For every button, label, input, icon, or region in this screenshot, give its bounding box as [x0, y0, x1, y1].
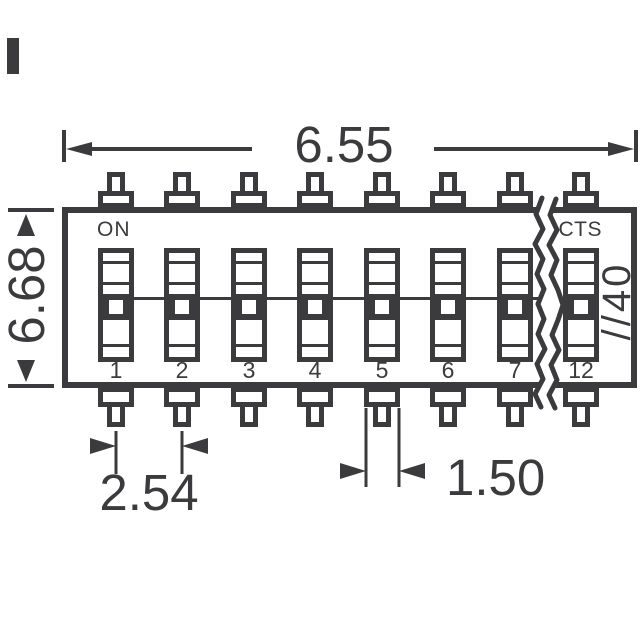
- dip-switch-drawing: 1 2 3 4 5 6 7 12 ON CTS //40 6.55 6.68 2…: [0, 0, 640, 640]
- dimension-lines: [0, 0, 640, 640]
- corner-mark: [7, 38, 19, 74]
